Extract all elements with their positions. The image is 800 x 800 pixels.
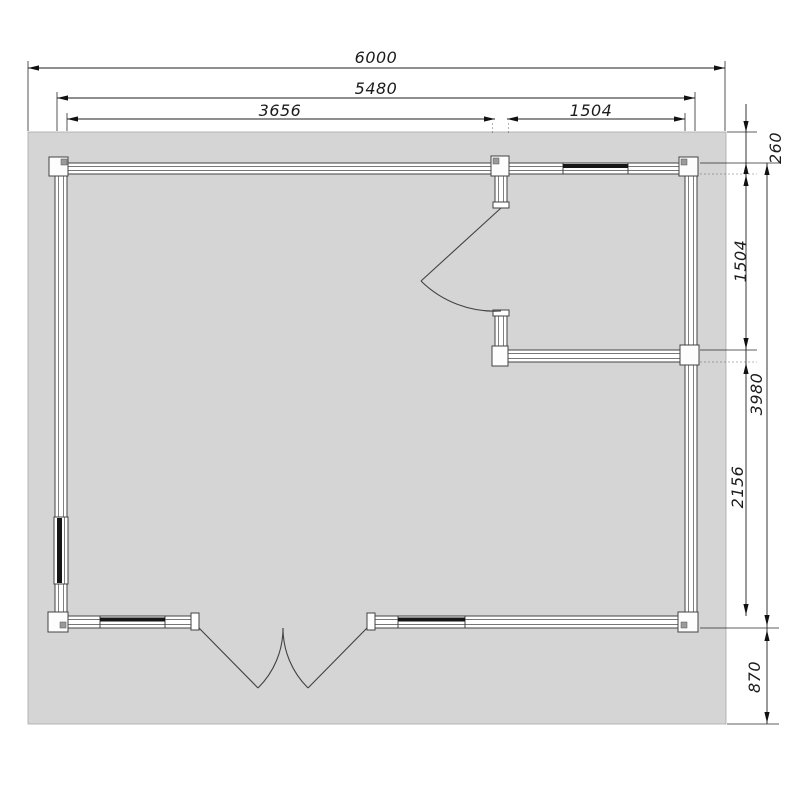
- door-jamb-top: [493, 202, 509, 208]
- arrow-right: [484, 116, 495, 121]
- window-top: [563, 163, 628, 174]
- post-notch: [493, 158, 499, 164]
- arrow-up: [743, 163, 748, 174]
- terrace-deck: [28, 132, 726, 724]
- window-glass: [563, 164, 628, 168]
- arrow-down: [743, 121, 748, 132]
- dim-left-section-width: [67, 116, 495, 121]
- dim-right-section-width: [507, 116, 685, 121]
- partition-vertical-upper: [495, 174, 507, 202]
- dim-right-outer-chain: [764, 163, 769, 724]
- window-glass: [57, 518, 62, 583]
- arrow-down: [743, 338, 748, 349]
- partition-horizontal: [507, 350, 685, 362]
- entrance-jamb-left: [191, 613, 199, 630]
- arrow-down: [764, 712, 769, 723]
- post-notch: [61, 159, 67, 165]
- right-wall: [685, 163, 697, 628]
- arrow-right: [674, 116, 685, 121]
- arrow-down: [764, 615, 769, 626]
- post-notch: [60, 622, 66, 628]
- window-left: [54, 517, 68, 584]
- post-partition-junction: [492, 346, 508, 366]
- floor-plan-drawing: [0, 0, 800, 800]
- floor-plan-page: 6000 5480 3656 1504 260 1504 3980 2156 8…: [0, 0, 800, 800]
- dim-overall-width: [28, 65, 725, 70]
- arrow-right: [684, 95, 695, 100]
- partition-vertical-lower: [495, 316, 507, 350]
- window-bottom-left: [100, 616, 165, 628]
- post-notch: [681, 159, 687, 165]
- window-glass: [398, 618, 465, 622]
- arrow-down: [743, 604, 748, 615]
- window-bottom-right: [398, 616, 465, 628]
- window-glass: [100, 618, 165, 622]
- arrow-right: [714, 65, 725, 70]
- arrow-left: [67, 116, 78, 121]
- entrance-jamb-right: [367, 613, 375, 630]
- dim-building-width: [57, 95, 695, 100]
- arrow-up: [764, 630, 769, 641]
- arrow-left: [28, 65, 39, 70]
- post-notch: [681, 622, 687, 628]
- arrow-up: [764, 164, 769, 175]
- arrow-left: [57, 95, 68, 100]
- dim-right-inner-chain: [743, 104, 748, 616]
- arrow-left: [507, 116, 518, 121]
- post-right-junction: [680, 345, 699, 365]
- arrow-up: [743, 363, 748, 374]
- arrow-up: [743, 175, 748, 186]
